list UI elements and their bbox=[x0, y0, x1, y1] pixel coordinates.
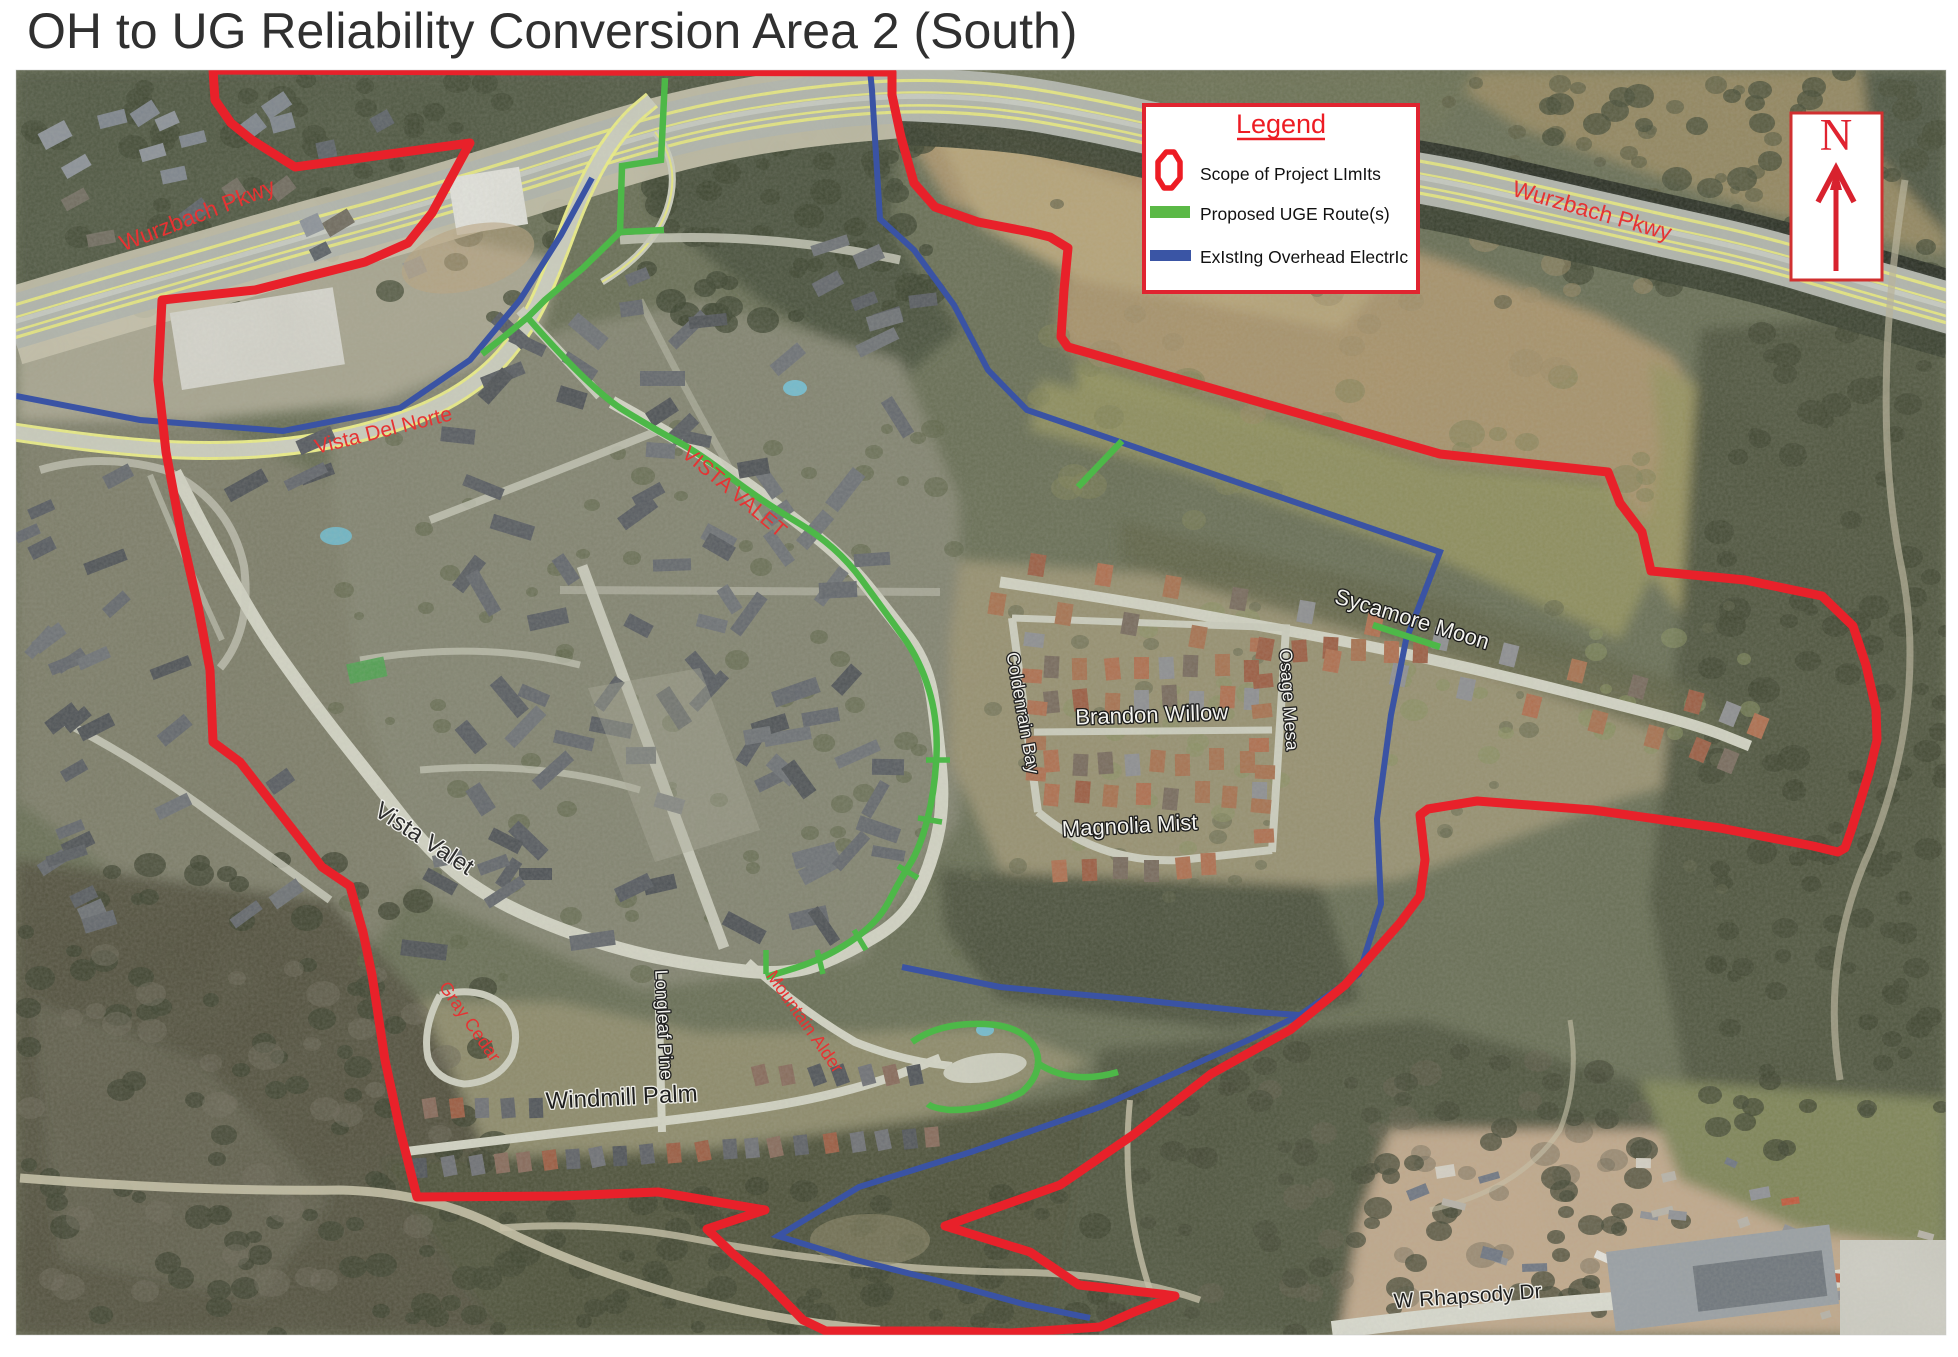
svg-text:ExIstIng Overhead ElectrIc: ExIstIng Overhead ElectrIc bbox=[1200, 247, 1408, 267]
svg-text:Brandon Willow: Brandon Willow bbox=[1075, 699, 1229, 729]
svg-text:Legend: Legend bbox=[1236, 109, 1326, 139]
svg-text:Scope of Project LImIts: Scope of Project LImIts bbox=[1200, 164, 1381, 184]
svg-text:Proposed UGE Route(s): Proposed UGE Route(s) bbox=[1200, 204, 1390, 224]
svg-text:N: N bbox=[1820, 110, 1853, 160]
svg-text:OH to UG Reliability Conversio: OH to UG Reliability Conversion Area 2 (… bbox=[27, 3, 1077, 59]
